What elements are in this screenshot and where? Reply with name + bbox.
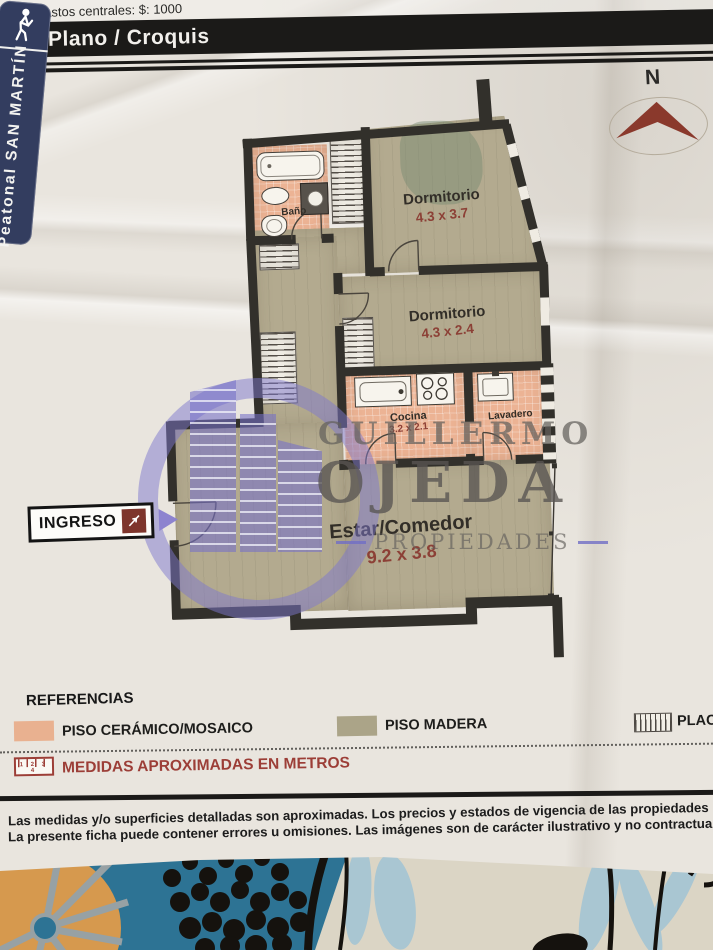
entrance-marker: INGRESO bbox=[27, 501, 178, 542]
ingreso-label: INGRESO bbox=[39, 513, 117, 534]
window-line bbox=[544, 463, 561, 599]
legend-label-ceramic: PISO CERÁMICO/MOSAICO bbox=[62, 720, 253, 739]
ruler-numbers: 1 2 3 4 bbox=[16, 762, 52, 775]
legend-swatch-placard bbox=[634, 713, 672, 733]
legend-swatch-ceramic bbox=[14, 721, 54, 742]
walls-and-doors bbox=[45, 57, 634, 695]
legend-label-placard: PLAC bbox=[677, 713, 713, 730]
floor-plan: Baño Dormitorio 4.3 x 3.7 Dormitorio 4.3… bbox=[45, 57, 634, 695]
arrow-right-icon bbox=[159, 508, 179, 531]
laundry-sink-icon bbox=[477, 373, 514, 402]
north-arrow-icon bbox=[612, 98, 704, 149]
stove-icon bbox=[416, 372, 455, 405]
legend-label-wood: PISO MADERA bbox=[385, 716, 488, 734]
north-label: N bbox=[644, 66, 660, 91]
bathtub-icon bbox=[256, 150, 325, 181]
kitchen-sink-icon bbox=[354, 376, 412, 408]
ruler-icon: 1 2 3 4 bbox=[14, 757, 54, 777]
legend-swatch-wood bbox=[337, 716, 377, 737]
photo-of-floorplan-flyer: Gastos centrales: $: 1000 Plano / Croqui… bbox=[0, 0, 713, 950]
section-title: Plano / Croquis bbox=[48, 24, 210, 51]
legend-title: REFERENCIAS bbox=[26, 690, 134, 710]
key-icon bbox=[122, 509, 147, 534]
